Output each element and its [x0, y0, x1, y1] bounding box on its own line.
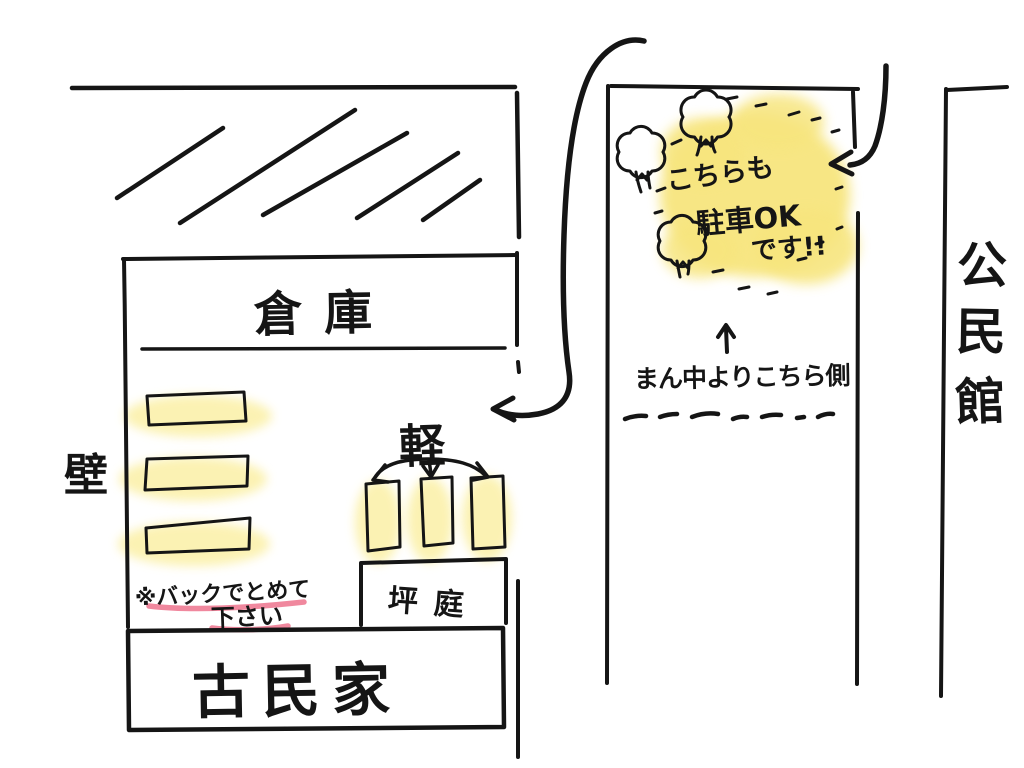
left-wall-line: [124, 259, 128, 627]
reverse-parking-note: ※バックでとめて 下さい: [134, 577, 310, 632]
community-center-char: 民: [955, 303, 1006, 362]
community-center-char: 館: [954, 372, 1006, 432]
parking-sketch-map: 倉庫 壁 軽 坪庭 ※バックでとめて 下さい 古民家: [0, 0, 1024, 768]
warehouse-box: 倉庫: [123, 253, 517, 349]
hatch-lines: [117, 110, 480, 223]
community-center-char: 公: [956, 236, 1008, 296]
up-arrow-icon: [718, 325, 734, 352]
old-house-label: 古民家: [191, 655, 402, 727]
arrowhead-icon: [493, 398, 514, 420]
dashed-line: [625, 413, 833, 419]
courtyard-box: 坪庭: [361, 559, 506, 625]
wall-label: 壁: [64, 450, 108, 501]
right-wall-line: [518, 362, 519, 757]
ok-note-line3: です!!: [750, 231, 828, 266]
entry-arrow: [831, 66, 886, 174]
sketch-svg: 倉庫 壁 軽 坪庭 ※バックでとめて 下さい 古民家: [0, 0, 1024, 768]
hatched-strip: [72, 87, 519, 237]
courtyard-label: 坪庭: [387, 583, 481, 624]
warehouse-label: 倉庫: [253, 285, 395, 343]
tree-icon: [617, 126, 665, 192]
center-note: まん中よりこちら側: [634, 361, 850, 394]
old-house-box: 古民家: [128, 628, 504, 730]
community-center-wall: 公 民 館: [941, 87, 1008, 696]
